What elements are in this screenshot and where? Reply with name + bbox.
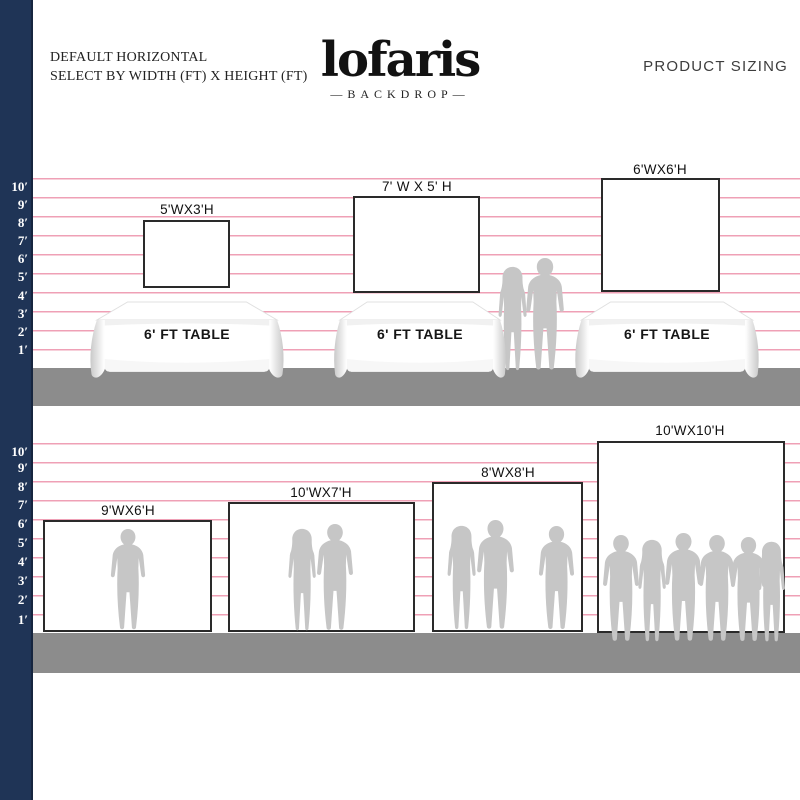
silhouette-man [314,524,356,637]
ruler-tick-8ft: 8′ [2,479,28,495]
silhouette-man [474,520,517,636]
backdrop-7x5 [353,196,480,293]
table-label: 6' FT TABLE [597,326,737,342]
ruler-tick-4ft: 4′ [2,288,28,304]
product-sizing-poster: DEFAULT HORIZONTAL SELECT BY WIDTH (FT) … [0,0,800,800]
ruler-tick-10ft: 10′ [2,444,28,460]
backdrop-size-label: 5'WX3'H [127,202,247,218]
ruler-tick-2ft: 2′ [2,324,28,340]
table-label: 6' FT TABLE [117,326,257,342]
ruler-tick-2ft: 2′ [2,592,28,608]
ruler-tick-1ft: 1′ [2,612,28,628]
ruler-tick-6ft: 6′ [2,251,28,267]
backdrop-6x6 [601,178,720,292]
ruler-tick-1ft: 1′ [2,342,28,358]
ruler-tick-5ft: 5′ [2,535,28,551]
ruler-tick-5ft: 5′ [2,269,28,285]
silhouette-man [108,529,148,636]
backdrop-size-label: 6'WX6'H [600,162,720,178]
ruler-tick-3ft: 3′ [2,306,28,322]
ruler-tick-10ft: 10′ [2,179,28,195]
silhouette-man [536,526,577,636]
size-selection-note: DEFAULT HORIZONTAL SELECT BY WIDTH (FT) … [50,48,330,86]
backdrop-size-label: 8'WX8'H [448,465,568,481]
backdrop-5x3 [143,220,230,288]
silhouette-woman [752,540,791,648]
ruler-tick-7ft: 7′ [2,233,28,249]
size-note-line1: DEFAULT HORIZONTAL [50,48,330,67]
backdrop-size-label: 7' W X 5' H [337,179,497,195]
silhouette-man [523,258,567,377]
brand-logo: lofaris —BACKDROP— [290,34,510,102]
page-title: PRODUCT SIZING [636,58,788,75]
backdrop-size-label: 9'WX6'H [68,503,188,519]
ruler-tick-7ft: 7′ [2,497,28,513]
ruler-tick-3ft: 3′ [2,573,28,589]
ruler-tick-9ft: 9′ [2,460,28,476]
brand-tagline: —BACKDROP— [290,87,510,102]
brand-name: lofaris [290,34,510,86]
height-ruler-bar [0,0,33,800]
table-label: 6' FT TABLE [350,326,490,342]
size-note-line2: SELECT BY WIDTH (FT) X HEIGHT (FT) [50,67,330,86]
ruler-tick-4ft: 4′ [2,554,28,570]
ruler-tick-8ft: 8′ [2,215,28,231]
backdrop-size-label: 10'WX7'H [251,485,391,501]
ruler-tick-9ft: 9′ [2,197,28,213]
backdrop-size-label: 10'WX10'H [615,423,765,439]
ruler-tick-6ft: 6′ [2,516,28,532]
